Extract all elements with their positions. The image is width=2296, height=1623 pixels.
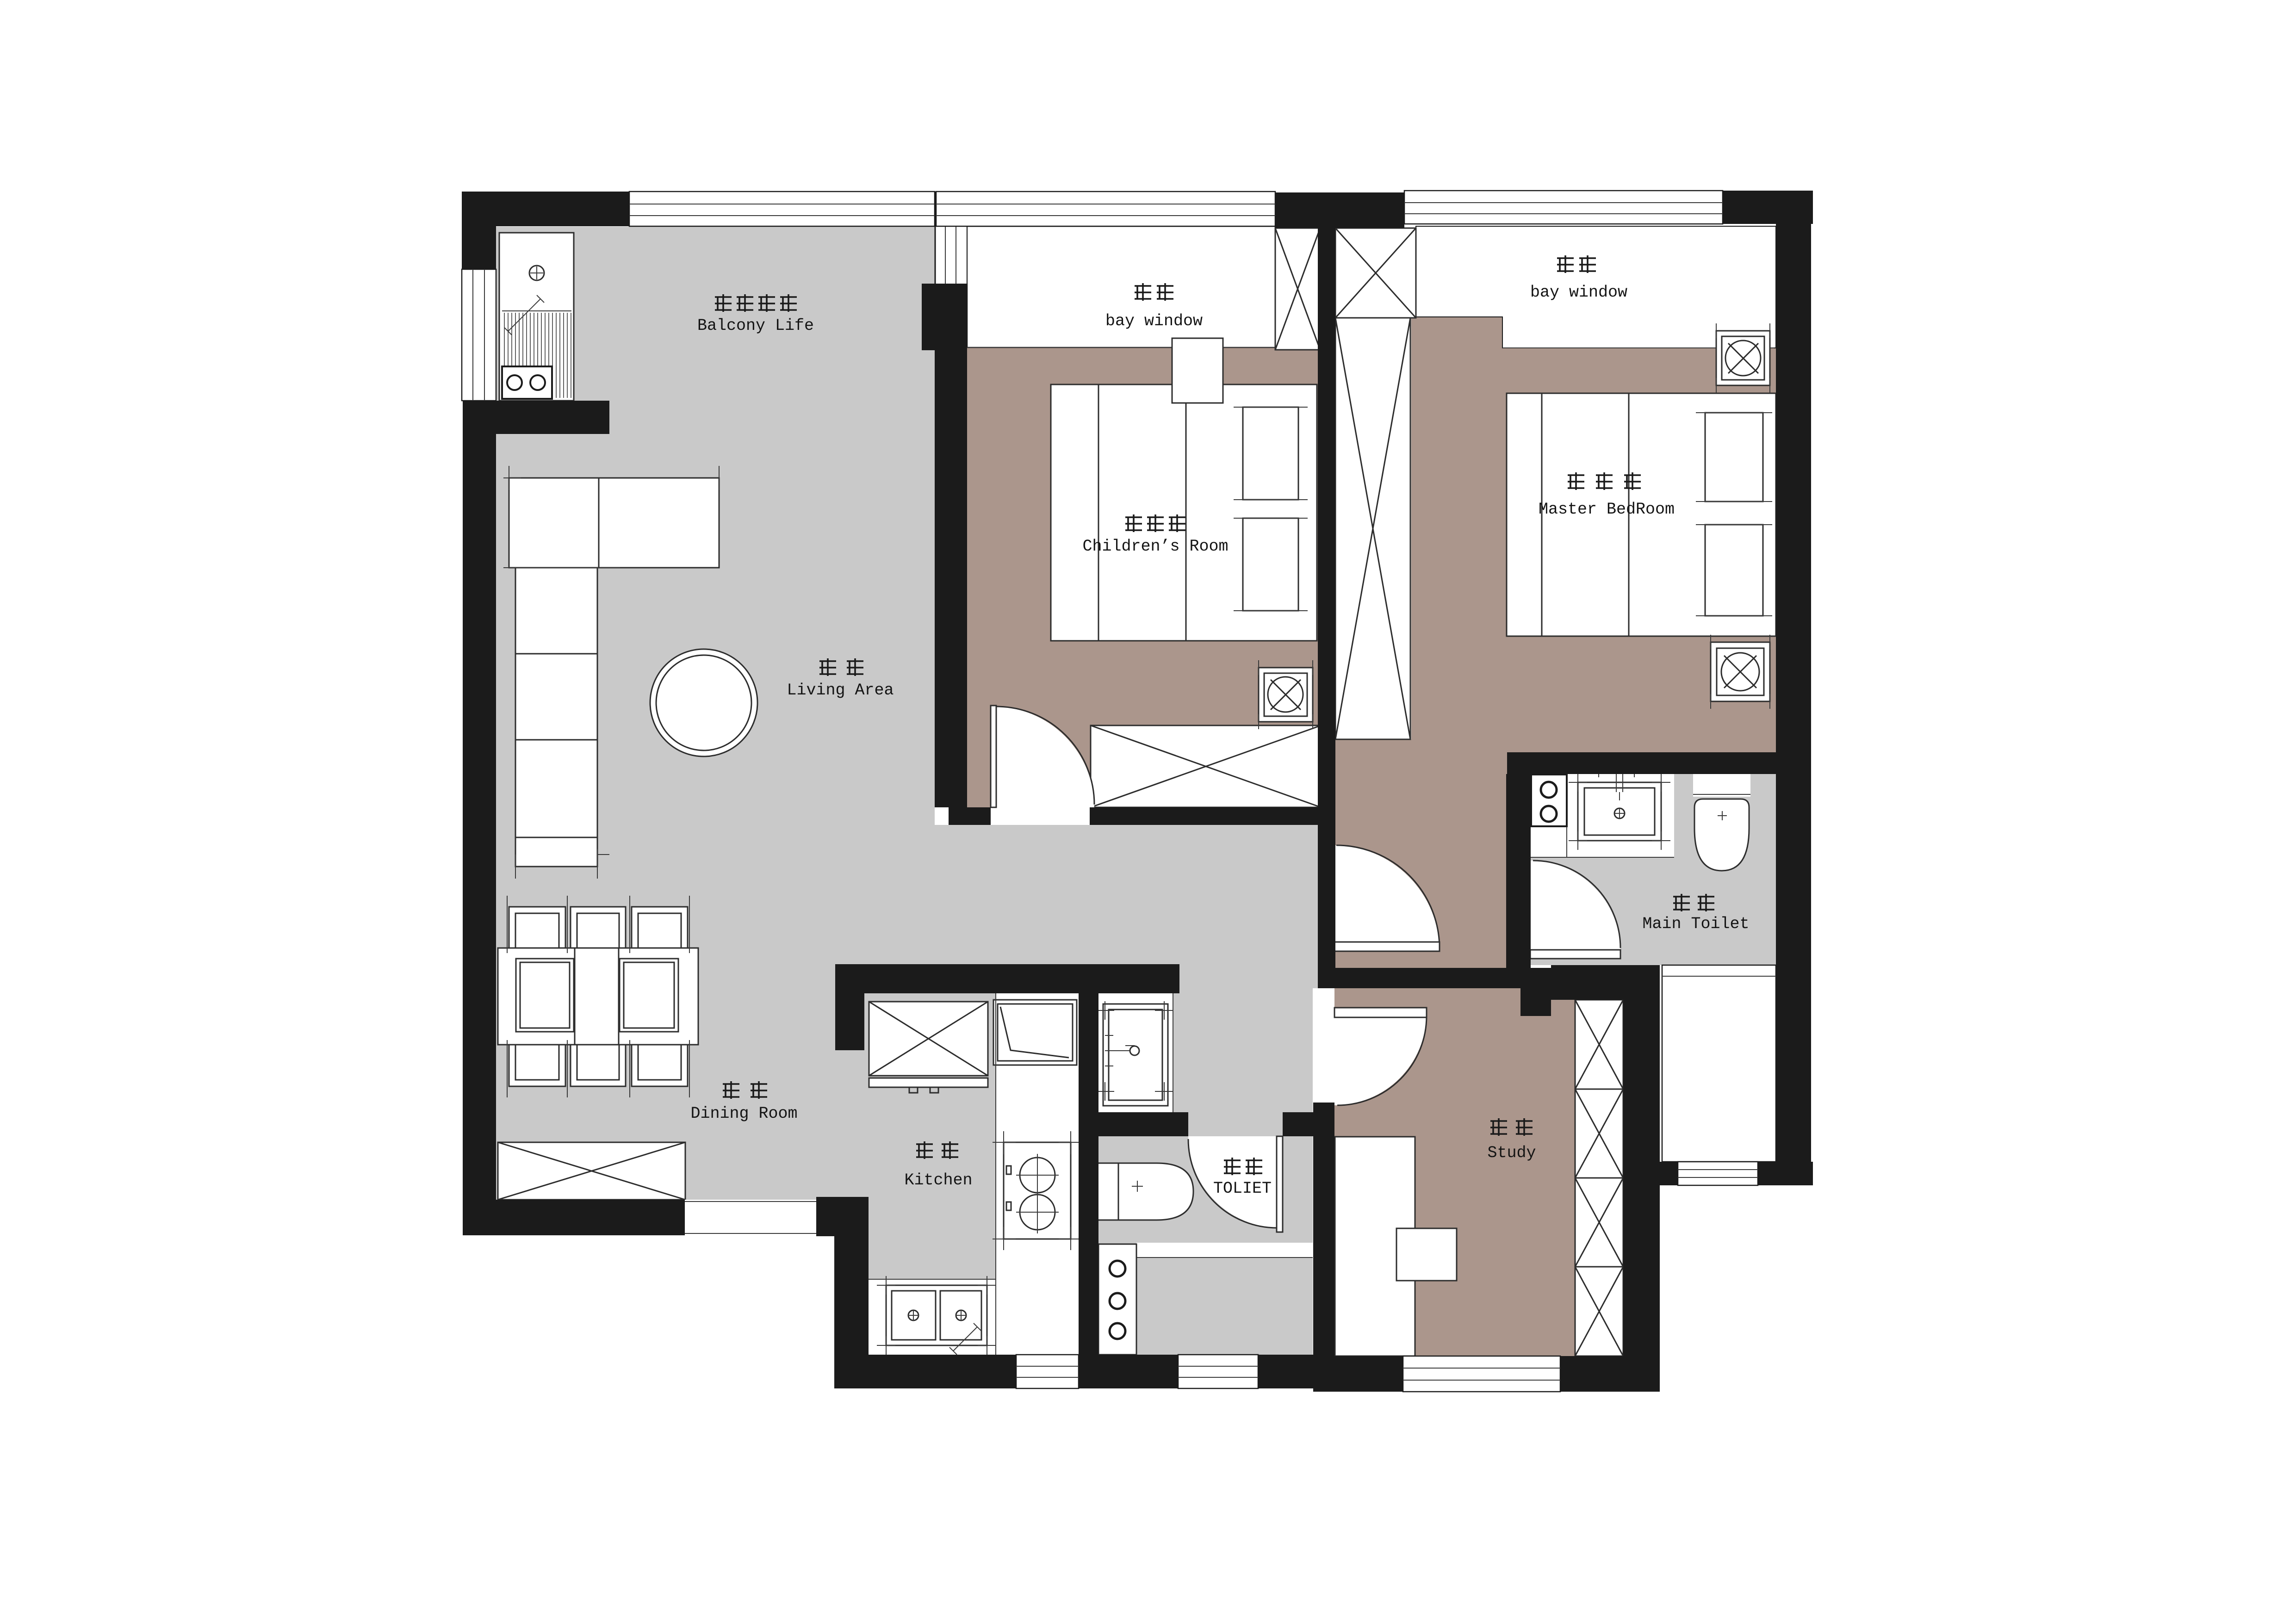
svg-text:Main Toilet: Main Toilet bbox=[1642, 915, 1749, 933]
svg-text:Dining Room: Dining Room bbox=[690, 1104, 797, 1123]
svg-text:Balcony Life: Balcony Life bbox=[697, 316, 814, 335]
svg-text:bay window: bay window bbox=[1530, 283, 1627, 302]
svg-text:Children’s Room: Children’s Room bbox=[1082, 537, 1228, 556]
svg-text:Study: Study bbox=[1487, 1144, 1536, 1162]
svg-text:bay window: bay window bbox=[1105, 312, 1203, 330]
svg-text:Kitchen: Kitchen bbox=[904, 1171, 972, 1189]
svg-text:Master BedRoom: Master BedRoom bbox=[1539, 500, 1675, 519]
svg-text:Living Area: Living Area bbox=[787, 681, 894, 700]
svg-text:TOLIET: TOLIET bbox=[1213, 1179, 1272, 1198]
